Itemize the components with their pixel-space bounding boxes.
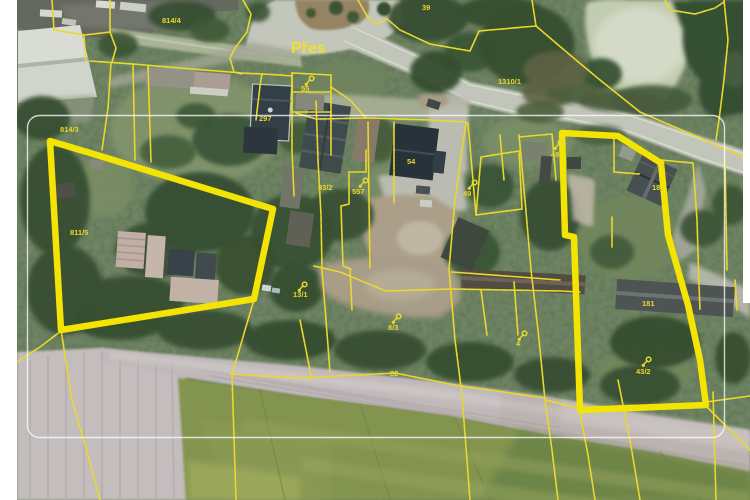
- svg-text:43/2: 43/2: [636, 367, 651, 376]
- svg-text:1310/1: 1310/1: [498, 77, 521, 86]
- svg-text:48: 48: [551, 150, 559, 159]
- svg-text:54: 54: [407, 157, 416, 166]
- svg-text:811/5: 811/5: [70, 228, 88, 237]
- svg-text:182: 182: [652, 183, 665, 192]
- svg-text:814/4: 814/4: [162, 16, 182, 25]
- svg-text:814/3: 814/3: [60, 125, 79, 134]
- svg-text:49: 49: [463, 189, 471, 198]
- svg-text:181: 181: [642, 299, 655, 308]
- svg-text:83/2: 83/2: [318, 183, 333, 192]
- svg-text:8/3: 8/3: [388, 323, 398, 332]
- svg-text:557: 557: [352, 187, 365, 196]
- svg-text:39: 39: [422, 3, 430, 12]
- svg-text:Přes: Přes: [291, 40, 326, 57]
- svg-text:82: 82: [390, 369, 398, 378]
